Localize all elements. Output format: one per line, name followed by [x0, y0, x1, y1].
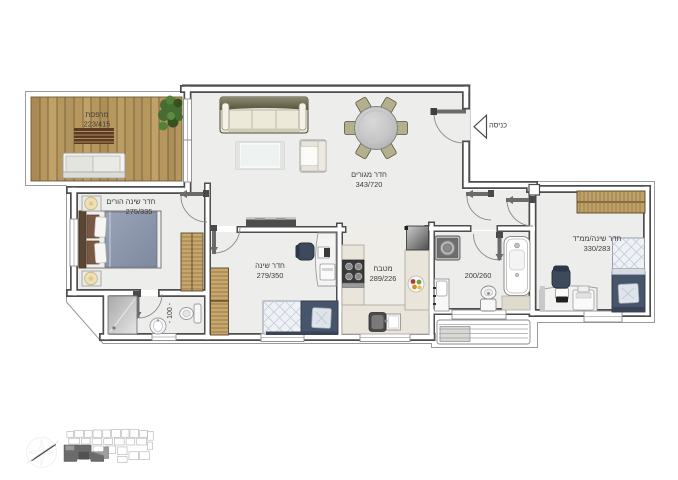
svg-text:חדר שינה: חדר שינה — [255, 261, 285, 270]
svg-text:- 100 -: - 100 - — [167, 302, 174, 323]
svg-text:279/350: 279/350 — [257, 271, 284, 280]
svg-text:כניסה: כניסה — [489, 121, 507, 130]
svg-text:חדר שינה/ממ"ד: חדר שינה/ממ"ד — [573, 234, 622, 243]
svg-text:223/415: 223/415 — [84, 120, 111, 129]
svg-text:275/335: 275/335 — [126, 207, 153, 216]
svg-text:343/720: 343/720 — [356, 180, 383, 189]
svg-text:200/260: 200/260 — [465, 271, 492, 280]
svg-text:330/283: 330/283 — [584, 244, 611, 253]
svg-text:289/226: 289/226 — [370, 274, 397, 283]
svg-text:מטבח: מטבח — [373, 264, 392, 273]
svg-text:חדר שינה הורים: חדר שינה הורים — [106, 197, 155, 206]
svg-text:חדר מגורים: חדר מגורים — [351, 170, 387, 179]
svg-text:מרפסת: מרפסת — [85, 110, 108, 119]
